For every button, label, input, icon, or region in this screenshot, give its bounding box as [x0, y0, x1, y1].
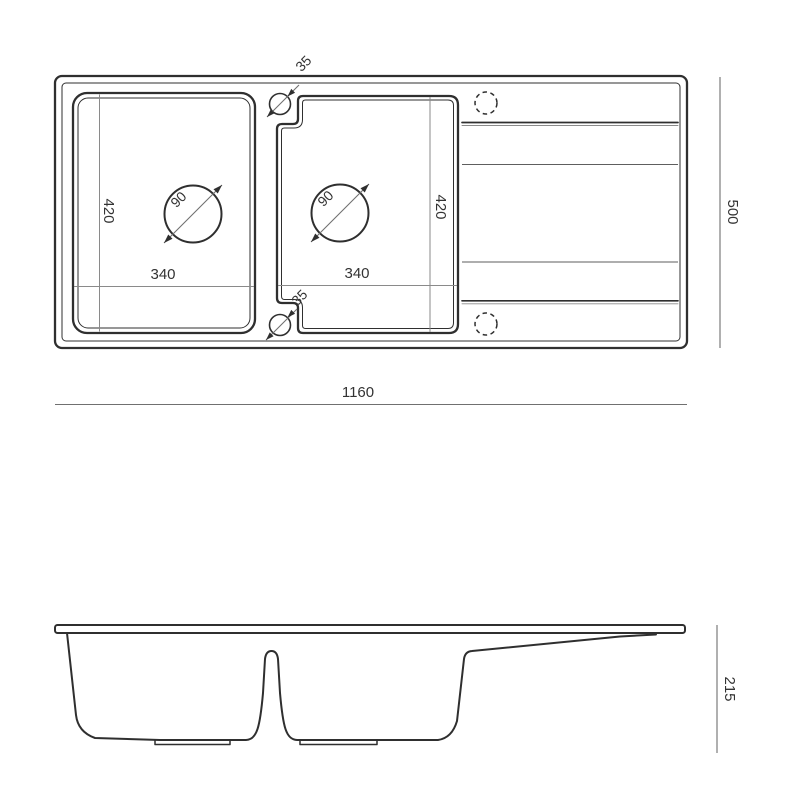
- right-bowl-width-label: 340: [344, 265, 369, 282]
- overall-depth-label: 500: [724, 199, 741, 224]
- left-bowl-depth-label: 420: [100, 198, 117, 223]
- overall-height-dimension: 215: [717, 625, 738, 753]
- side-view-elevation: 215: [55, 625, 738, 753]
- overall-width-dimension: 1160: [55, 384, 687, 405]
- tap-hole-top-diameter-label: 35: [292, 52, 314, 74]
- overall-width-label: 1160: [342, 384, 374, 401]
- side-view-body-profile: [67, 633, 656, 740]
- overall-height-label: 215: [721, 676, 738, 701]
- side-view-rim: [55, 625, 685, 633]
- top-view-plan: 90 90 35 35: [55, 52, 741, 405]
- tap-hole-bottom: [270, 315, 291, 336]
- right-bowl-depth-label: 420: [432, 194, 449, 219]
- sink-technical-drawing: 90 90 35 35: [0, 0, 800, 800]
- drawing-canvas: 90 90 35 35: [0, 0, 800, 800]
- left-bowl-width-label: 340: [150, 266, 175, 283]
- overall-depth-dimension: 500: [720, 77, 741, 348]
